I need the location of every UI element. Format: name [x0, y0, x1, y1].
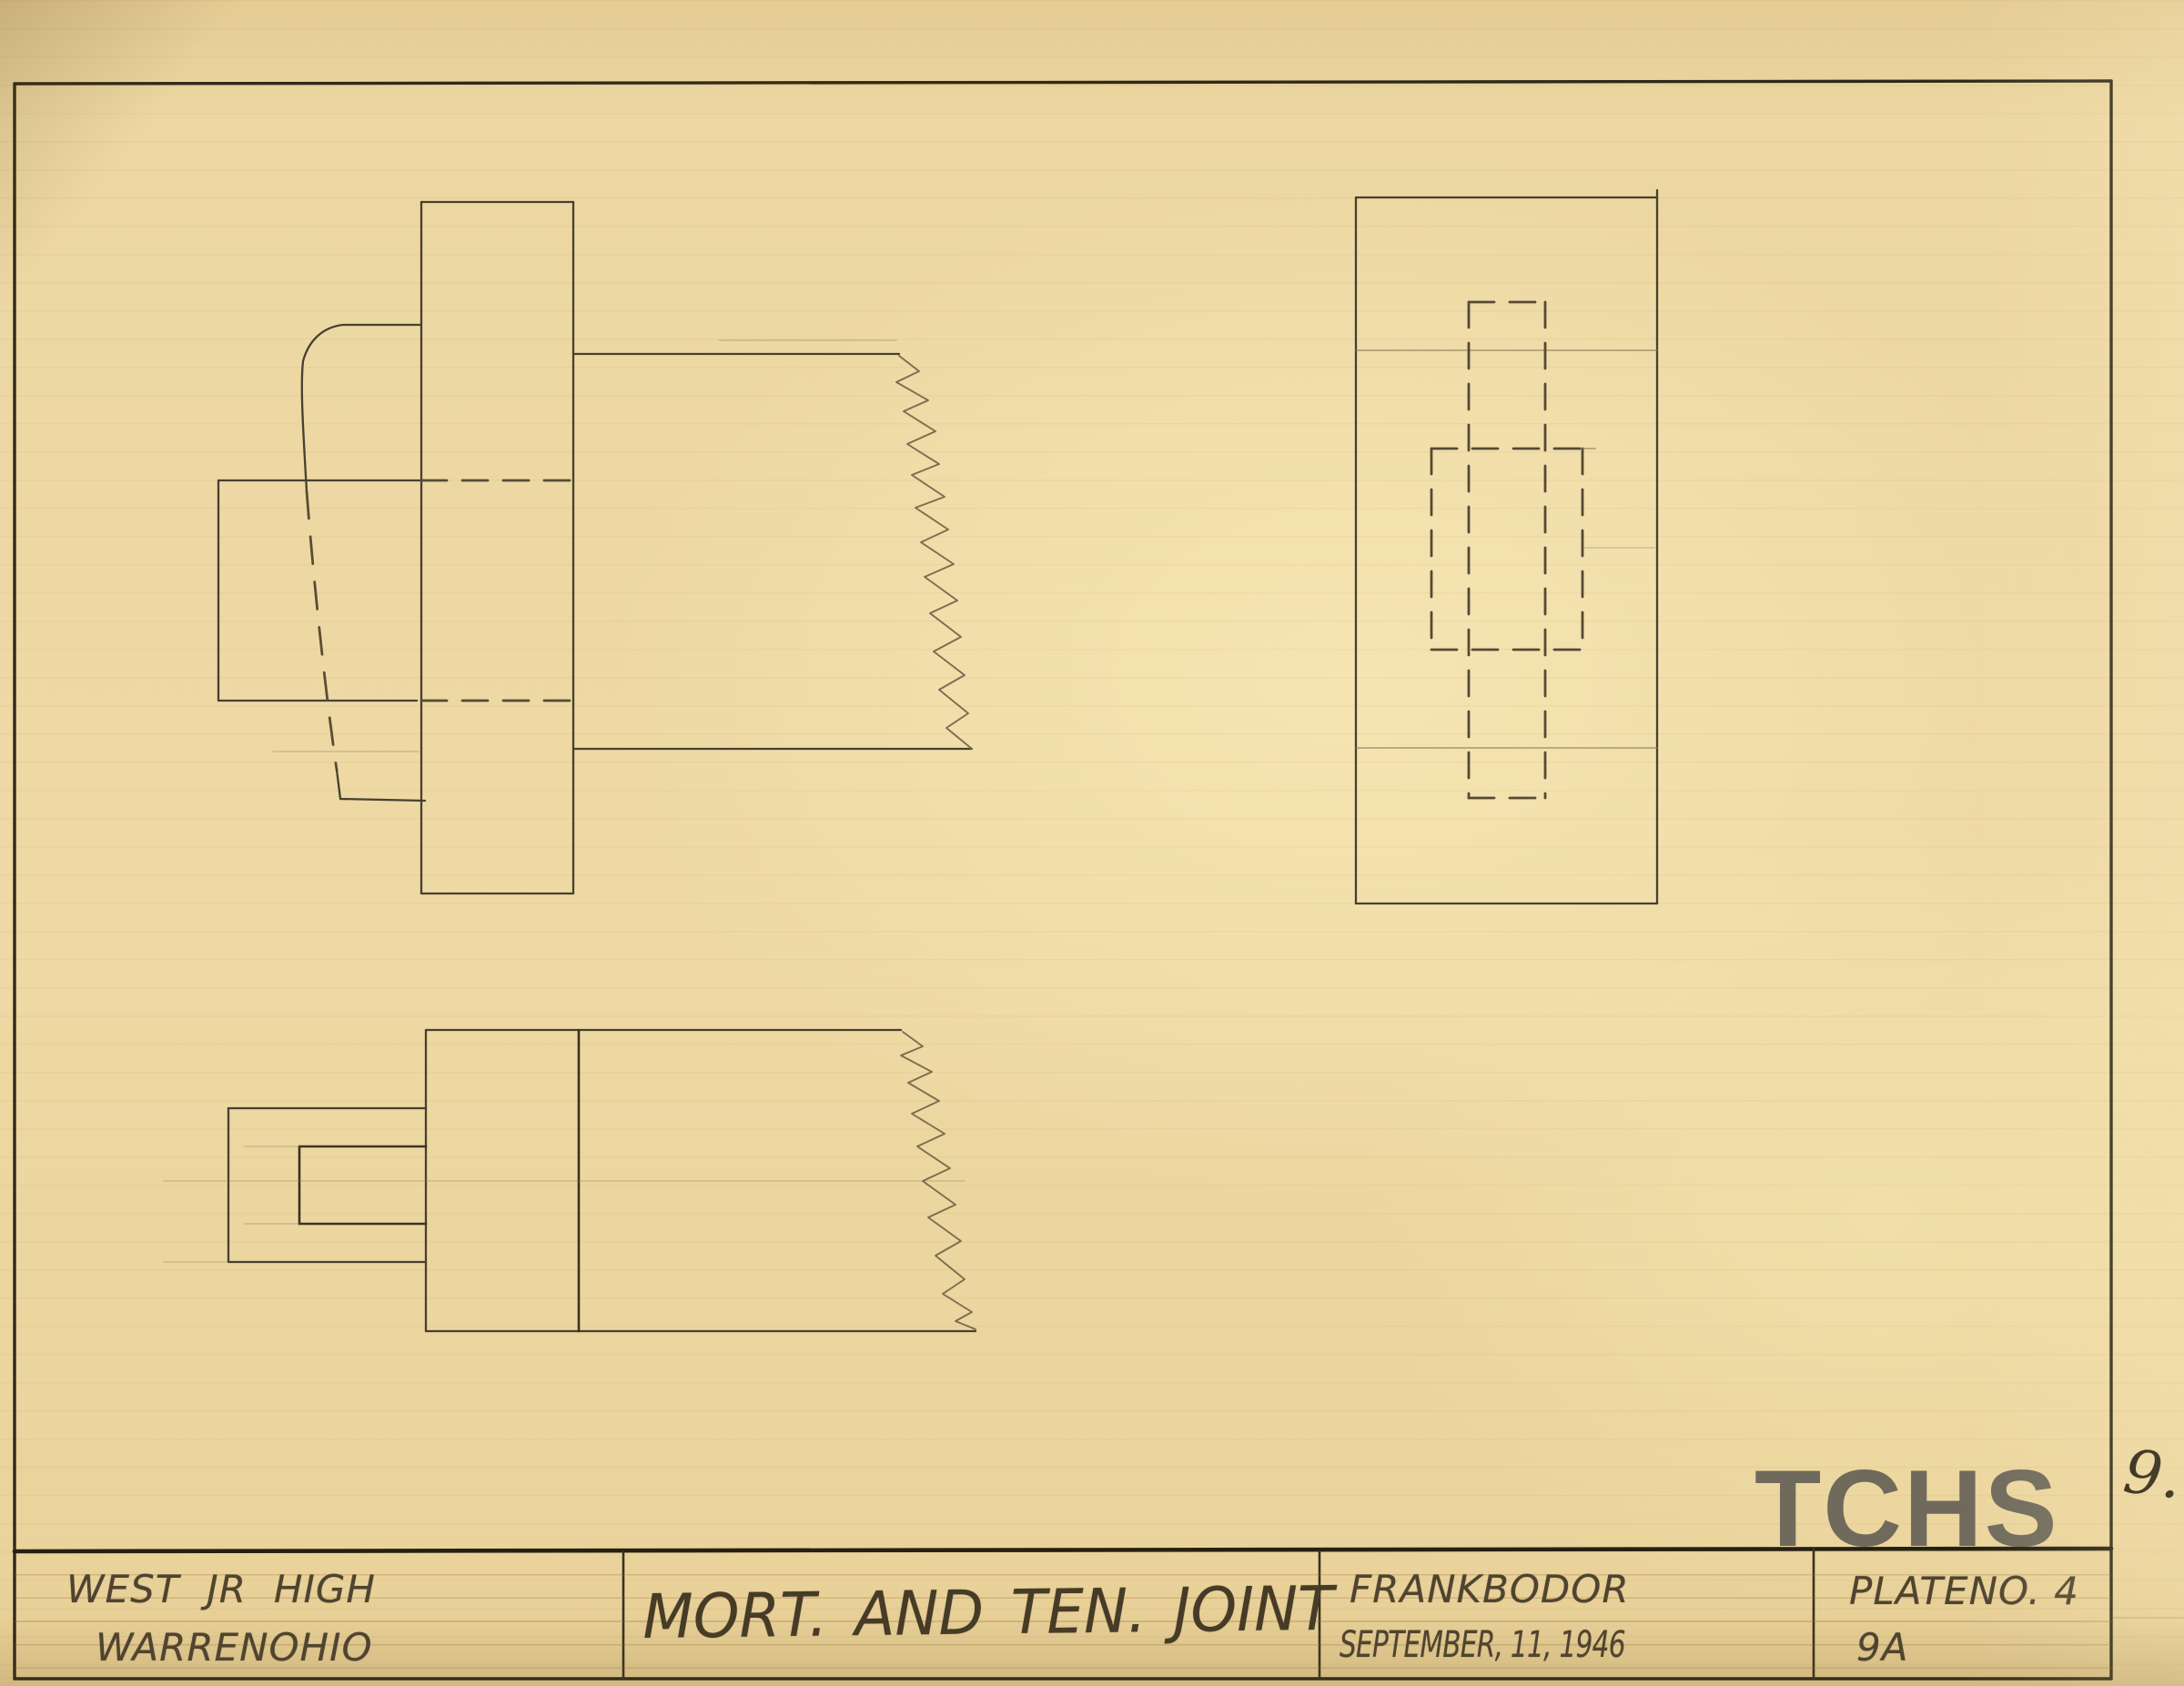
drafting-sheet: WEST JR HIGH WARREN OHIO MORT. AND TEN. … [0, 0, 2184, 1686]
sheet-border [15, 81, 2184, 1679]
city-word: WARREN [96, 1629, 269, 1667]
technical-drawing [0, 0, 2184, 1686]
school-word: WEST [66, 1570, 179, 1609]
front-view-joint [218, 202, 972, 893]
author-name-line: FRANK BODOR [1350, 1570, 1577, 1609]
plate-number-line: PLATE NO. 4 [1849, 1572, 2071, 1610]
plate-number: NO. 4 [1969, 1572, 2079, 1610]
handwritten-page-number: 9. [2120, 1441, 2184, 1508]
school-name-line: WEST JR HIGH [66, 1570, 376, 1609]
tchs-watermark: TCHS [1754, 1454, 2059, 1563]
school-city-line: WARREN OHIO [96, 1629, 307, 1667]
top-view-joint [164, 1030, 976, 1331]
author-last-name: BODOR [1482, 1570, 1629, 1609]
side-view-joint [1356, 190, 1657, 904]
school-word: JR [207, 1570, 247, 1609]
plate-label: PLATE [1849, 1572, 1969, 1610]
author-first-name: FRANK [1350, 1570, 1482, 1609]
school-word: HIGH [274, 1570, 376, 1609]
drawing-title: MORT. AND TEN. JOINT [642, 1579, 1334, 1648]
drawing-date: SEPTEMBER, 11, 1946 [1340, 1627, 1625, 1663]
plate-code: 9A [1856, 1629, 1908, 1667]
state-word: OHIO [269, 1629, 373, 1667]
